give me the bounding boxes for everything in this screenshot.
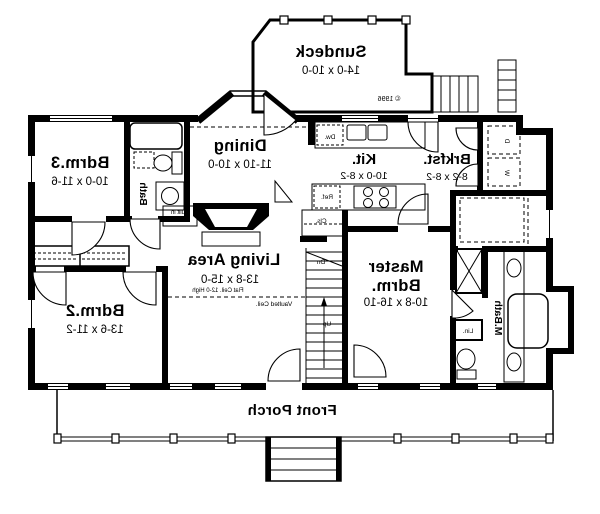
built-in-cab-label-1: Built in — [171, 210, 189, 216]
porch-label: Front Porch — [247, 402, 336, 419]
up-label: Up — [322, 321, 331, 328]
bathtub — [130, 123, 182, 149]
side-stoop — [498, 60, 516, 112]
ref-label: Ref. — [321, 194, 333, 201]
master-label-2: Bdrm. — [371, 277, 420, 295]
floorplan-canvas: Sundeck 14-0 x 10-0 © 1996 Bdrm.3 10-0 x… — [0, 0, 600, 514]
bdrm2-dims: 13-6 x 11-2 — [66, 324, 123, 336]
front-steps — [266, 437, 341, 481]
sundeck-label: Sundeck — [295, 43, 366, 61]
master-bath — [457, 250, 574, 382]
toilet — [154, 155, 172, 171]
kitchen-sink — [347, 125, 366, 140]
staircase[interactable] — [306, 248, 342, 383]
bdrm3-label: Bdrm.3 — [51, 154, 110, 172]
brkfst-label: Brkfst. — [423, 151, 471, 168]
living-dims: 13-8 x 15-0 — [201, 274, 259, 286]
vaulted-ceil-note: Vaulted Ceil. — [256, 301, 293, 308]
living-label: Living Area — [187, 251, 280, 269]
dining-corner-cabinet — [275, 181, 292, 202]
dryer-label: D — [503, 138, 510, 143]
mbath-sink-1 — [507, 259, 521, 277]
dining-label: Dining — [213, 137, 266, 155]
master-label-1: Master — [368, 258, 423, 276]
toilet-tank — [172, 152, 182, 174]
built-in-cab-label-2: Cab. — [173, 218, 186, 224]
dn-label: Dn — [316, 259, 325, 266]
kitchen-dims: 10-0 x 8-2 — [340, 170, 387, 182]
mbath-label: M.Bath — [492, 301, 504, 336]
master-dims: 10-8 x 16-10 — [364, 297, 429, 309]
bdrm3-dims: 10-0 x 11-6 — [51, 176, 108, 188]
lin-label: Lin. — [463, 328, 474, 335]
sink — [162, 188, 179, 205]
storage-area — [460, 198, 528, 244]
bdrm2-label: Bdrm.2 — [66, 302, 125, 320]
dining-dims: 11-10 x 10-0 — [208, 159, 272, 171]
kitchen-label: Kit. — [352, 151, 376, 168]
mbath-toilet — [457, 349, 475, 369]
brkfst-dims: 8-2 x 8-2 — [426, 171, 468, 183]
sundeck-steps — [432, 76, 478, 112]
master-tub — [508, 294, 548, 348]
washer-label: W — [503, 169, 510, 176]
sundeck-dims: 14-0 x 10-0 — [302, 65, 360, 77]
master-closet — [456, 249, 482, 293]
bath-label: Bath — [137, 182, 149, 205]
flat-ceil-note: Flat Ceil. 12-0 High — [192, 288, 243, 294]
mbath-sink-2 — [507, 353, 521, 371]
range — [354, 186, 396, 208]
fireplace — [193, 203, 269, 246]
copyright-text: © 1996 — [378, 95, 401, 103]
dw-label: Dw. — [324, 134, 335, 141]
floorplan-drawing: Sundeck 14-0 x 10-0 © 1996 Bdrm.3 10-0 x… — [0, 0, 600, 514]
cls-label: Cls. — [315, 218, 326, 225]
